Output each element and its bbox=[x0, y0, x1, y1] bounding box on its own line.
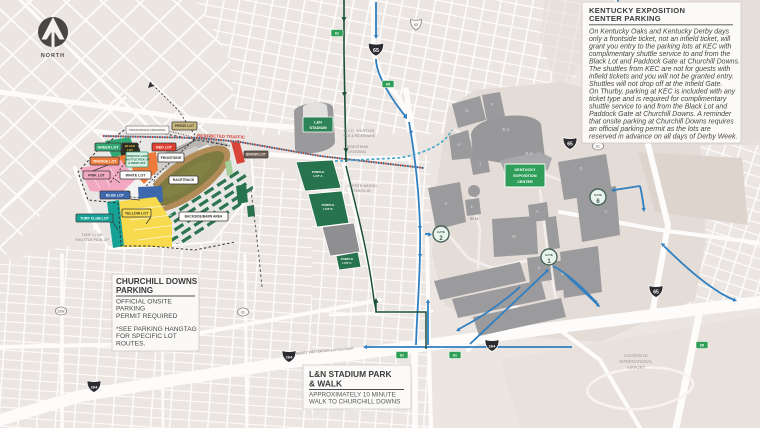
svg-text:TAXI & RIDESHARE: TAXI & RIDESHARE bbox=[343, 134, 376, 138]
svg-text:G: G bbox=[465, 108, 469, 113]
svg-text:RACETRACK: RACETRACK bbox=[173, 178, 195, 182]
svg-text:GREEN LOT: GREEN LOT bbox=[98, 145, 120, 149]
svg-text:61: 61 bbox=[241, 310, 245, 314]
svg-text:BROWN LOT: BROWN LOT bbox=[246, 153, 266, 157]
svg-text:LOT: LOT bbox=[127, 148, 133, 152]
svg-text:61: 61 bbox=[400, 354, 404, 358]
svg-text:N: N bbox=[512, 234, 515, 239]
svg-text:ROUTES.: ROUTES. bbox=[116, 340, 145, 347]
svg-text:PARKING: PARKING bbox=[116, 286, 153, 295]
svg-text:GATE: GATE bbox=[594, 193, 602, 197]
svg-text:HOTEL SHUTTLES: HOTEL SHUTTLES bbox=[344, 129, 375, 133]
svg-text:BLUE LOT: BLUE LOT bbox=[106, 193, 125, 197]
svg-text:RED LOT: RED LOT bbox=[156, 145, 173, 149]
svg-text:J: J bbox=[479, 162, 481, 167]
svg-text:65: 65 bbox=[567, 142, 573, 148]
svg-text:EXPOSITION: EXPOSITION bbox=[513, 174, 536, 178]
svg-text:264: 264 bbox=[91, 385, 98, 390]
svg-text:LOT C: LOT C bbox=[342, 261, 352, 265]
svg-text:61: 61 bbox=[453, 354, 457, 358]
svg-text:RV lot: RV lot bbox=[470, 217, 479, 221]
svg-text:F: F bbox=[491, 102, 494, 107]
svg-text:Black Lot and Paddock Gate at: Black Lot and Paddock Gate at Churchill … bbox=[589, 59, 740, 66]
svg-text:The shuttles from KEC are not: The shuttles from KEC are not for guests… bbox=[589, 66, 730, 73]
svg-text:L&N STADIUM PARK: L&N STADIUM PARK bbox=[309, 369, 392, 379]
svg-text:CHECK-IN: CHECK-IN bbox=[354, 189, 371, 193]
svg-text:BACKSIDE/BARN AREA: BACKSIDE/BARN AREA bbox=[185, 215, 223, 219]
svg-text:shuttle service to and from th: shuttle service to and from the Black Lo… bbox=[589, 104, 728, 111]
svg-text:31W: 31W bbox=[58, 309, 66, 313]
svg-text:CHURCHILL DOWNS: CHURCHILL DOWNS bbox=[116, 277, 198, 286]
svg-text:PEDESTRIAN CROSSING: PEDESTRIAN CROSSING bbox=[129, 128, 166, 132]
svg-text:H: H bbox=[457, 142, 460, 147]
svg-text:KENTUCKY: KENTUCKY bbox=[514, 168, 536, 172]
svg-text:65: 65 bbox=[653, 290, 659, 296]
svg-text:YELLOW LOT: YELLOW LOT bbox=[125, 211, 149, 215]
svg-text:65: 65 bbox=[373, 48, 379, 54]
svg-text:60: 60 bbox=[414, 23, 418, 27]
svg-text:PINK LOT: PINK LOT bbox=[88, 173, 106, 177]
svg-text:CENTER: CENTER bbox=[517, 180, 533, 184]
svg-text:that onsite parking at Churchi: that onsite parking at Churchill Downs r… bbox=[589, 119, 734, 126]
svg-text:FRONTSIDE: FRONTSIDE bbox=[161, 156, 182, 160]
svg-text:TURF CLUB: TURF CLUB bbox=[81, 233, 103, 237]
svg-text:only a frontside ticket, not a: only a frontside ticket, not an infield … bbox=[589, 36, 731, 43]
svg-text:grant you entry to the parking: grant you entry to the parking lots at K… bbox=[589, 44, 732, 51]
svg-text:Shuttles will not drop off at: Shuttles will not drop off at the Infiel… bbox=[589, 81, 723, 88]
svg-text:APPROXIMATELY 10 MINUTE: APPROXIMATELY 10 MINUTE bbox=[309, 392, 396, 399]
svg-text:OFFSITE WAGON: OFFSITE WAGON bbox=[347, 184, 377, 188]
svg-text:NORTH: NORTH bbox=[41, 53, 65, 59]
svg-text:LOT A: LOT A bbox=[313, 174, 323, 178]
svg-text:AIRPORT: AIRPORT bbox=[627, 365, 646, 370]
svg-text:61: 61 bbox=[596, 144, 600, 148]
svg-text:264: 264 bbox=[286, 355, 293, 360]
svg-text:P: P bbox=[537, 266, 540, 271]
svg-text:E-2: E-2 bbox=[502, 127, 510, 132]
svg-text:A: A bbox=[535, 209, 538, 214]
svg-text:LOUISVILLE: LOUISVILLE bbox=[624, 353, 648, 358]
svg-text:TURF CLUB LOT: TURF CLUB LOT bbox=[80, 216, 110, 220]
svg-text:L&N: L&N bbox=[314, 121, 322, 125]
svg-text:K: K bbox=[444, 201, 447, 206]
svg-text:STADIUM: STADIUM bbox=[309, 126, 326, 130]
svg-text:ORANGE LOT: ORANGE LOT bbox=[93, 159, 118, 163]
svg-text:On Kentucky Oaks and Kentucky: On Kentucky Oaks and Kentucky Derby days bbox=[589, 29, 730, 36]
svg-text:complimentary shuttle service: complimentary shuttle service to and fro… bbox=[589, 51, 730, 58]
svg-text:FOR SPECIFIC LOT: FOR SPECIFIC LOT bbox=[116, 333, 177, 340]
svg-text:GATE: GATE bbox=[545, 253, 553, 257]
svg-text:SHUTTLE PICK-UP: SHUTTLE PICK-UP bbox=[75, 238, 109, 242]
svg-text:On Thurby, parking at KEC is i: On Thurby, parking at KEC is included wi… bbox=[589, 89, 736, 96]
svg-text:OFFICIAL ONSITE: OFFICIAL ONSITE bbox=[116, 299, 172, 306]
svg-text:PRESS LOT: PRESS LOT bbox=[175, 124, 195, 128]
svg-text:65: 65 bbox=[700, 344, 704, 348]
svg-text:CROSSING: CROSSING bbox=[348, 150, 367, 154]
svg-text:264: 264 bbox=[489, 344, 496, 349]
svg-text:& DROP-OFF: & DROP-OFF bbox=[128, 161, 146, 165]
svg-text:61: 61 bbox=[335, 32, 339, 36]
svg-text:PEDESTRIAN: PEDESTRIAN bbox=[346, 145, 369, 149]
svg-text:WHITE LOT: WHITE LOT bbox=[126, 173, 147, 177]
svg-text:ticket type and is required fo: ticket type and is required for complime… bbox=[589, 96, 727, 103]
svg-text:LOT B: LOT B bbox=[323, 207, 333, 211]
svg-text:an official parking permit as: an official parking permit as the lots a… bbox=[589, 126, 711, 133]
svg-text:PARKING: PARKING bbox=[116, 306, 145, 313]
svg-text:GATE: GATE bbox=[437, 230, 445, 234]
svg-text:65: 65 bbox=[386, 83, 390, 87]
svg-text:E-3: E-3 bbox=[525, 151, 533, 156]
svg-text:infield tickets and you will n: infield tickets and you will not be gran… bbox=[589, 74, 734, 81]
svg-text:& WALK: & WALK bbox=[309, 379, 342, 389]
svg-text:CENTER PARKING: CENTER PARKING bbox=[589, 14, 661, 23]
svg-text:INTERNATIONAL: INTERNATIONAL bbox=[619, 359, 653, 364]
svg-text:WALK TO CHURCHILL DOWNS: WALK TO CHURCHILL DOWNS bbox=[309, 399, 400, 406]
svg-text:Paddock Gate at Churchill Down: Paddock Gate at Churchill Downs. A remin… bbox=[589, 111, 732, 118]
svg-text:*SEE PARKING HANGTAG: *SEE PARKING HANGTAG bbox=[116, 326, 197, 333]
svg-text:reserved in advance on all day: reserved in advance on all days of Derby… bbox=[589, 134, 738, 141]
svg-text:PERMIT REQUIRED: PERMIT REQUIRED bbox=[116, 313, 178, 320]
